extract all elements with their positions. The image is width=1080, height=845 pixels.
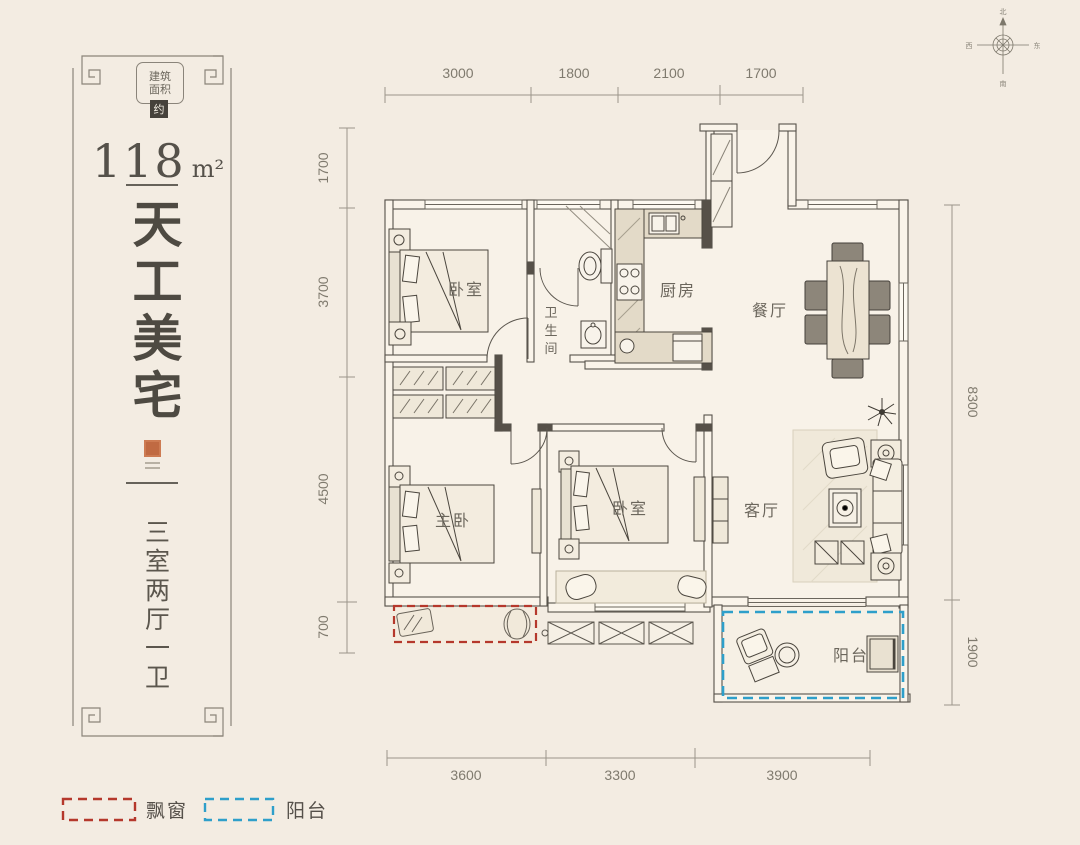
floor-plan-page: 建筑 面积 约 118m² 天 工 美 宅 三 室 两 厅 一 卫 xyxy=(0,0,1080,845)
floor-plan-drawing: 3000 1800 2100 1700 1700 3700 4500 700 8… xyxy=(0,0,1080,845)
room-label-bathroom-char: 间 xyxy=(544,341,557,356)
legend-balcony-swatch xyxy=(205,799,273,820)
room-label-kitchen: 厨房 xyxy=(660,282,696,300)
room-label-dining: 餐厅 xyxy=(752,302,788,320)
dim-top-1: 3000 xyxy=(442,65,473,81)
dim-left-2: 3700 xyxy=(315,276,331,307)
dim-left-1: 1700 xyxy=(315,152,331,183)
room-label-bathroom-char: 卫 xyxy=(544,305,557,320)
dim-bottom-3: 3900 xyxy=(766,767,797,783)
dim-top-4: 1700 xyxy=(745,65,776,81)
entry-shoe-cabinet xyxy=(711,134,732,227)
room-label-bedroom-middle: 卧室 xyxy=(612,500,648,518)
dim-right-2: 1900 xyxy=(965,636,981,667)
dim-top-2: 1800 xyxy=(558,65,589,81)
compass-north: 北 xyxy=(1000,8,1007,16)
legend: 飘窗 阳台 xyxy=(63,799,328,822)
room-label-master: 主卧 xyxy=(435,512,471,530)
room-label-bathroom-char: 生 xyxy=(544,323,557,338)
compass-east: 东 xyxy=(1034,41,1041,50)
compass-icon: 北 南 东 西 xyxy=(966,8,1041,88)
legend-balcony-label: 阳台 xyxy=(286,800,328,822)
dim-bottom-2: 3300 xyxy=(604,767,635,783)
dim-left-3: 4500 xyxy=(315,473,331,504)
legend-bay-window-swatch xyxy=(63,799,135,820)
dim-top-3: 2100 xyxy=(653,65,684,81)
exterior-window-boxes xyxy=(542,622,693,644)
compass-west: 西 xyxy=(966,42,973,50)
dim-left-4: 700 xyxy=(315,615,331,639)
dim-bottom-1: 3600 xyxy=(450,767,481,783)
dim-right-1: 8300 xyxy=(965,386,981,417)
room-label-balcony: 阳台 xyxy=(833,647,869,665)
room-label-living: 客厅 xyxy=(744,502,780,520)
compass-south: 南 xyxy=(1000,79,1007,88)
legend-bay-window-label: 飘窗 xyxy=(146,800,188,822)
room-label-bedroom-top: 卧室 xyxy=(448,281,484,299)
